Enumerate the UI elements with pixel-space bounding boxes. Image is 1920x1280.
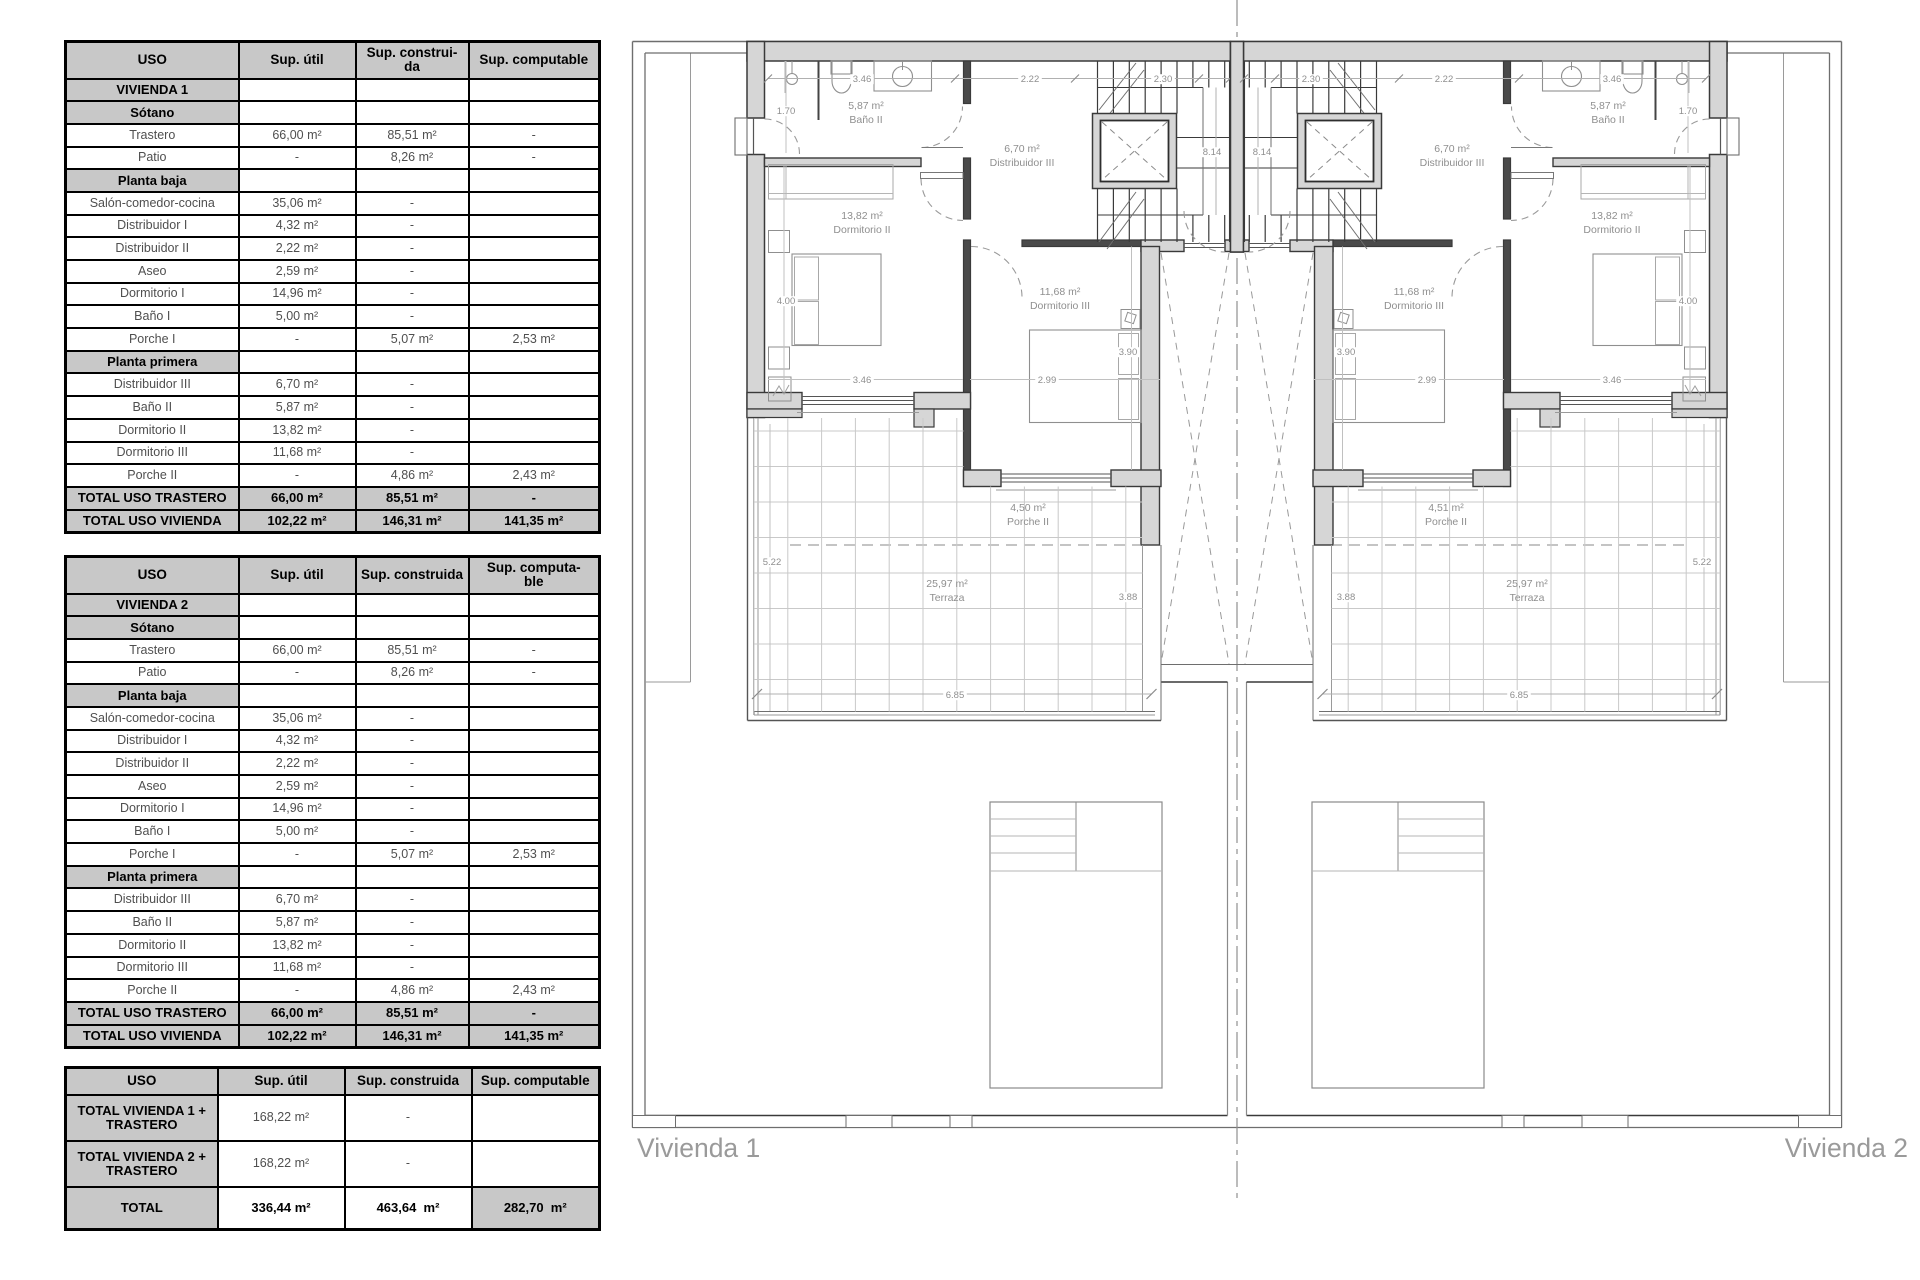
svg-text:Distribuidor III: Distribuidor III — [990, 157, 1055, 169]
svg-text:2.30: 2.30 — [1302, 74, 1321, 85]
svg-text:Dormitorio II: Dormitorio II — [1583, 224, 1640, 236]
svg-text:6,70 m²: 6,70 m² — [1434, 143, 1470, 155]
svg-text:5.22: 5.22 — [1693, 557, 1712, 568]
svg-text:Porche II: Porche II — [1425, 516, 1467, 528]
svg-text:Baño II: Baño II — [849, 114, 882, 126]
svg-text:2.22: 2.22 — [1435, 74, 1454, 85]
svg-text:6,70 m²: 6,70 m² — [1004, 143, 1040, 155]
svg-text:1.70: 1.70 — [1679, 106, 1698, 117]
svg-text:3.46: 3.46 — [1603, 74, 1622, 85]
svg-text:5.22: 5.22 — [763, 557, 782, 568]
svg-text:3.46: 3.46 — [853, 375, 872, 386]
svg-text:4,51 m²: 4,51 m² — [1428, 502, 1464, 514]
svg-text:8.14: 8.14 — [1203, 147, 1222, 158]
svg-text:13,82 m²: 13,82 m² — [1591, 210, 1633, 222]
svg-text:25,97 m²: 25,97 m² — [926, 578, 968, 590]
svg-text:Distribuidor III: Distribuidor III — [1420, 157, 1485, 169]
svg-text:6.85: 6.85 — [946, 690, 965, 701]
svg-text:Vivienda 2: Vivienda 2 — [1785, 1133, 1908, 1163]
svg-text:3.90: 3.90 — [1337, 347, 1356, 358]
svg-text:3.90: 3.90 — [1119, 347, 1138, 358]
svg-text:6.85: 6.85 — [1510, 690, 1529, 701]
svg-text:4,50 m²: 4,50 m² — [1010, 502, 1046, 514]
svg-text:3.88: 3.88 — [1119, 592, 1138, 603]
svg-text:Dormitorio II: Dormitorio II — [833, 224, 890, 236]
svg-text:11,68 m²: 11,68 m² — [1394, 286, 1435, 298]
svg-text:Terraza: Terraza — [1509, 592, 1544, 604]
svg-text:2.99: 2.99 — [1418, 375, 1437, 386]
svg-text:Porche II: Porche II — [1007, 516, 1049, 528]
svg-text:8.14: 8.14 — [1253, 147, 1272, 158]
svg-text:3.88: 3.88 — [1337, 592, 1356, 603]
svg-text:11,68 m²: 11,68 m² — [1040, 286, 1081, 298]
svg-text:Vivienda 1: Vivienda 1 — [637, 1133, 760, 1163]
svg-text:3.46: 3.46 — [1603, 375, 1622, 386]
svg-text:2.30: 2.30 — [1154, 74, 1173, 85]
svg-text:25,97 m²: 25,97 m² — [1506, 578, 1548, 590]
svg-text:5,87 m²: 5,87 m² — [848, 100, 884, 112]
svg-text:3.46: 3.46 — [853, 74, 872, 85]
svg-text:2.99: 2.99 — [1038, 375, 1057, 386]
svg-text:5,87 m²: 5,87 m² — [1590, 100, 1626, 112]
svg-text:2.22: 2.22 — [1021, 74, 1040, 85]
svg-text:Dormitorio III: Dormitorio III — [1030, 300, 1090, 312]
svg-text:4.00: 4.00 — [777, 296, 796, 307]
svg-text:4.00: 4.00 — [1679, 296, 1698, 307]
svg-text:Dormitorio III: Dormitorio III — [1384, 300, 1444, 312]
svg-text:1.70: 1.70 — [777, 106, 796, 117]
svg-text:Baño II: Baño II — [1591, 114, 1624, 126]
svg-text:13,82 m²: 13,82 m² — [841, 210, 883, 222]
svg-text:Terraza: Terraza — [929, 592, 964, 604]
